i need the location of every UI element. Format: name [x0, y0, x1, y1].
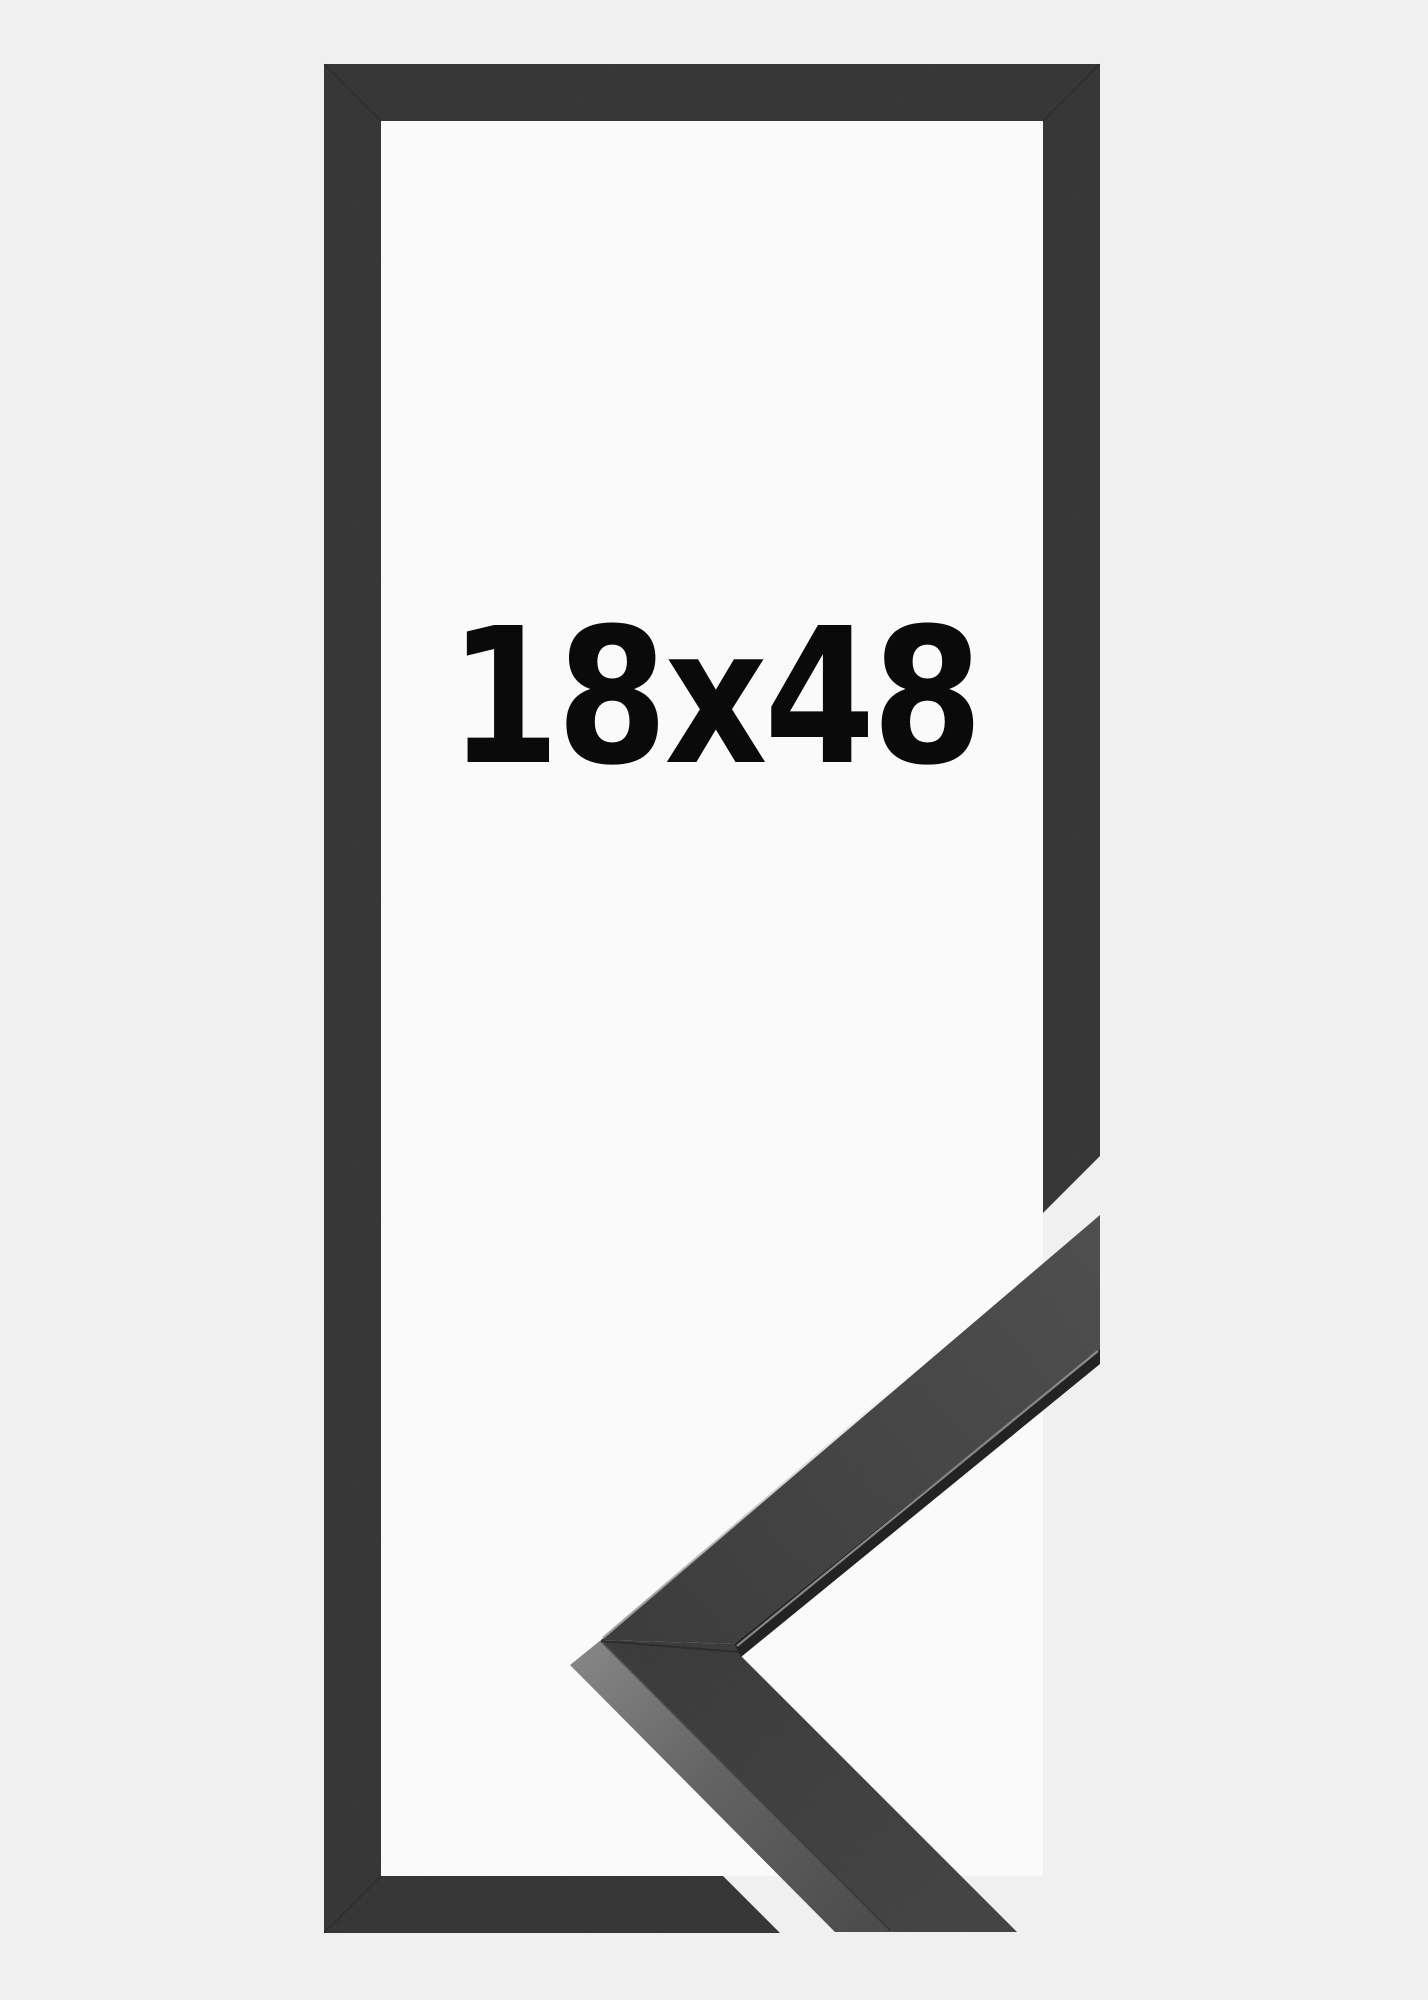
product-image: 18x48: [0, 0, 1428, 2000]
frame-illustration: [0, 0, 1428, 2000]
